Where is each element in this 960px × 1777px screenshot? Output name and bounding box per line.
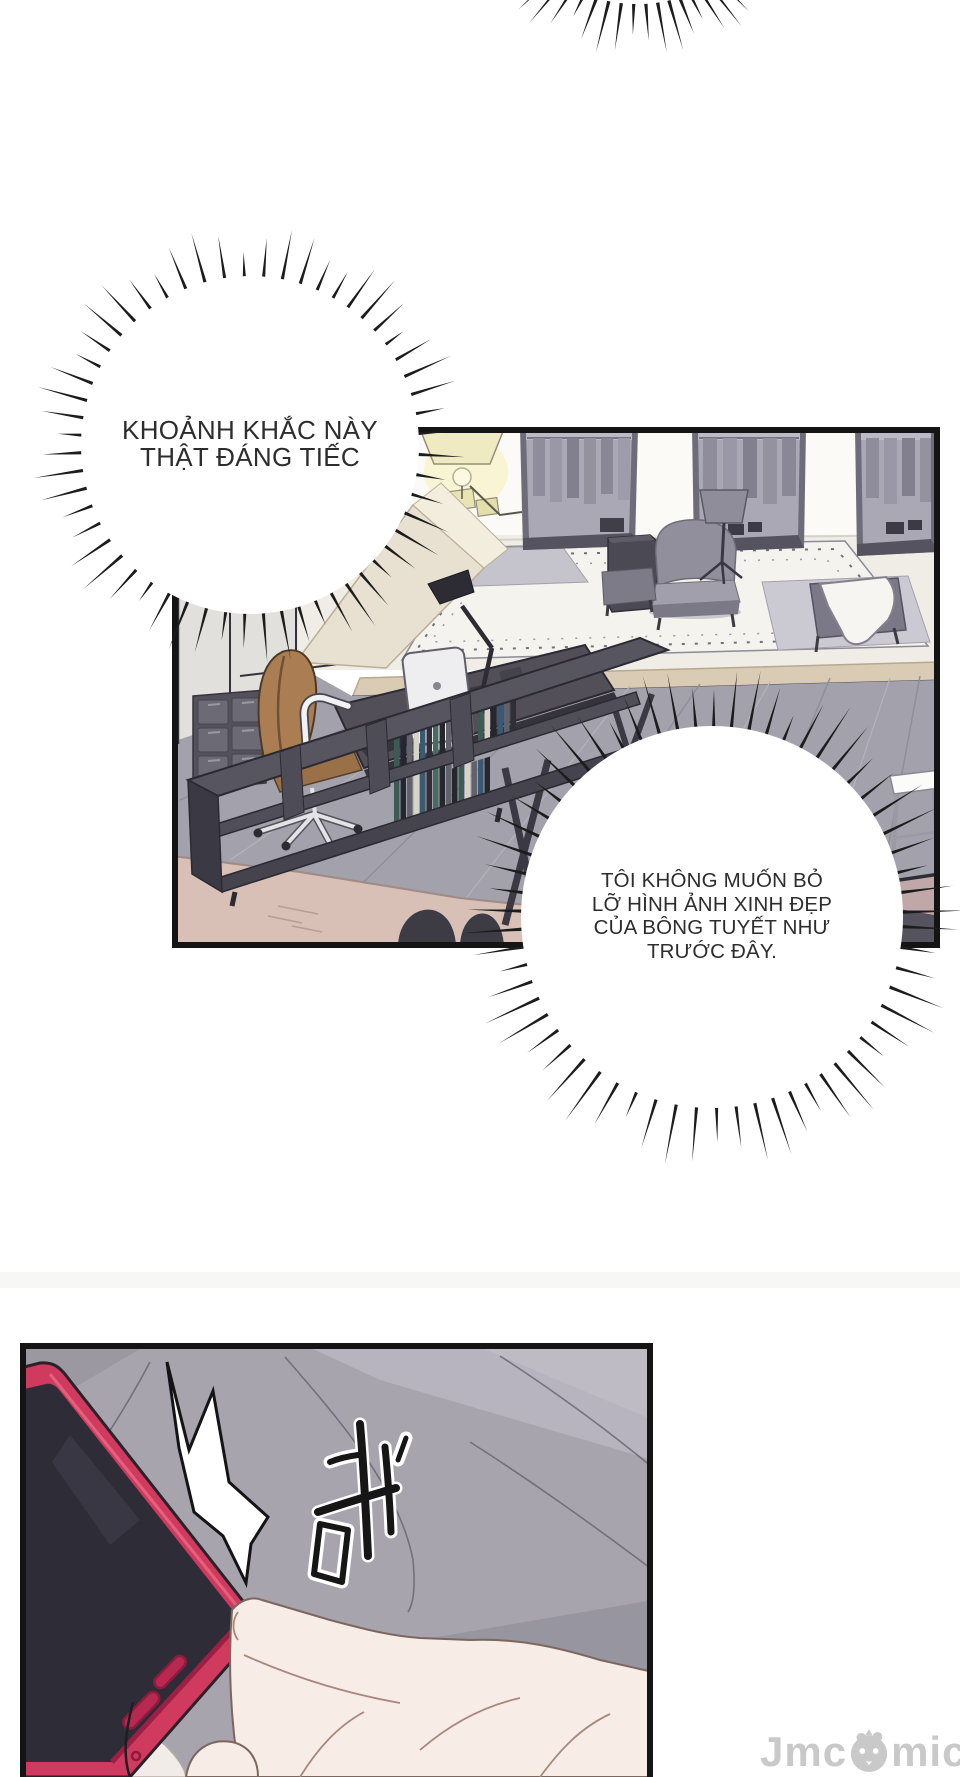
closet-window-1 xyxy=(520,428,638,550)
burst-bubble-top xyxy=(469,0,800,52)
closet-window-3 xyxy=(855,428,937,556)
page-shading-band xyxy=(0,1272,960,1288)
bubble2-line: TÔI KHÔNG MUỐN BỎ xyxy=(552,869,872,893)
bubble2-line: TRƯỚC ĐÂY. xyxy=(552,940,872,964)
bubble1-line: THẬT ĐÁNG TIẾC xyxy=(110,444,390,471)
phone-panel-illustration xyxy=(17,1340,656,1777)
watermark-suffix: mic xyxy=(891,1729,960,1775)
bubble1-line: KHOẢNH KHẮC NÀY xyxy=(110,417,390,444)
bubble1-text: KHOẢNH KHẮC NÀY THẬT ĐÁNG TIẾC xyxy=(110,417,390,471)
bubble2-line: CỦA BÔNG TUYẾT NHƯ xyxy=(552,916,872,940)
apple-logo-icon xyxy=(433,682,441,690)
watermark: Jmc mic xyxy=(760,1729,960,1775)
bubble2-line: LỠ HÌNH ẢNH XINH ĐẸP xyxy=(552,893,872,917)
watermark-prefix: Jmc xyxy=(760,1729,847,1775)
bubble2-text: TÔI KHÔNG MUỐN BỎ LỠ HÌNH ẢNH XINH ĐẸP C… xyxy=(552,869,872,963)
chick-face-icon xyxy=(848,1729,890,1775)
comic-page: KHOẢNH KHẮC NÀY THẬT ĐÁNG TIẾC TÔI KHÔNG… xyxy=(0,0,960,1777)
armchair xyxy=(649,520,741,630)
